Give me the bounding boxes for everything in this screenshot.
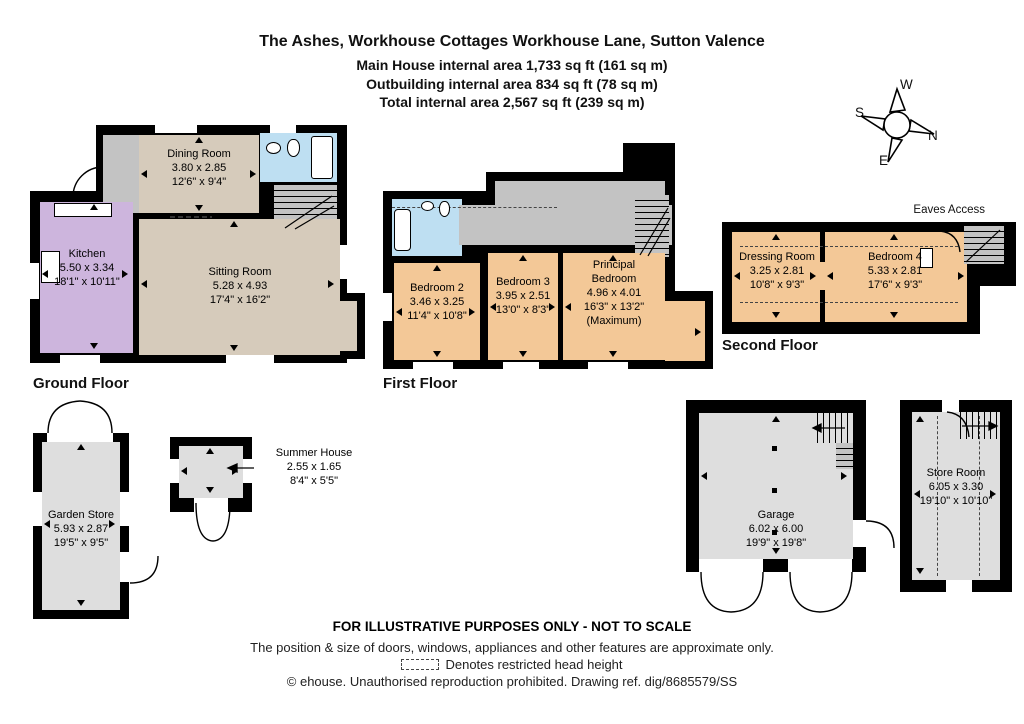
post-icon xyxy=(772,446,777,451)
room-dim-imperial: 17'6" x 9'3" xyxy=(825,278,965,292)
restricted-head-height-key-icon xyxy=(401,659,439,670)
room-dim-imperial: 19'10" x 10'10" xyxy=(904,494,1008,508)
door-opening xyxy=(120,552,129,582)
measure-arrow-icon xyxy=(77,444,85,450)
measure-arrow-icon xyxy=(232,467,238,475)
room-label-bedroom4: Bedroom 4 5.33 x 2.81 17'6" x 9'3" xyxy=(825,250,965,292)
post-icon xyxy=(772,488,777,493)
room-label-bedroom2: Bedroom 2 3.46 x 3.25 11'4" x 10'8" xyxy=(394,281,480,323)
compass-east-label: E xyxy=(879,153,888,168)
restricted-head-height-line xyxy=(740,302,958,303)
room-dim-imperial: 10'8" x 9'3" xyxy=(732,278,822,292)
window xyxy=(243,459,252,483)
room-name: Principal Bedroom xyxy=(579,258,649,286)
room-dim-imperial: 13'0" x 8'3" xyxy=(488,303,558,317)
door-opening xyxy=(47,433,113,442)
store-room-plan: Store Room 6.05 x 3.30 19'10" x 10'10" xyxy=(900,400,1014,595)
garage-stairs-turn xyxy=(836,443,853,469)
kitchen-sink-icon xyxy=(54,203,112,217)
sink-icon xyxy=(266,142,281,154)
floorplan-page: { "title": { "address": "The Ashes, Work… xyxy=(0,0,1024,724)
toilet-icon xyxy=(439,201,450,217)
measure-arrow-icon xyxy=(772,312,780,318)
room-dim-metric: 3.46 x 3.25 xyxy=(394,295,480,309)
property-address: The Ashes, Workhouse Cottages Workhouse … xyxy=(0,33,1024,51)
door-opening xyxy=(942,400,959,412)
measure-arrow-icon xyxy=(772,416,780,422)
room-label-dressing: Dressing Room 3.25 x 2.81 10'8" x 9'3" xyxy=(732,250,822,292)
door-opening xyxy=(788,559,852,572)
room-label-principal: Principal Bedroom 4.96 x 4.01 16'3" x 13… xyxy=(563,258,665,328)
room-label-sitting: Sitting Room 5.28 x 4.93 17'4" x 16'2" xyxy=(160,265,320,307)
restricted-head-height-key-text: Denotes restricted head height xyxy=(445,657,622,672)
bathtub-icon xyxy=(394,209,411,251)
window xyxy=(946,580,972,592)
first-stairs xyxy=(635,195,669,257)
measure-arrow-icon xyxy=(916,416,924,422)
measure-arrow-icon xyxy=(609,351,617,357)
room-dim-imperial: 11'4" x 10'8" xyxy=(394,309,480,323)
measure-arrow-icon xyxy=(519,351,527,357)
measure-arrow-icon xyxy=(890,234,898,240)
room-dim-metric: 2.55 x 1.65 xyxy=(258,460,370,474)
room-dim-metric: 6.05 x 3.30 xyxy=(904,480,1008,494)
room-name: Summer House xyxy=(258,446,370,460)
first-floor-caption: First Floor xyxy=(383,375,457,392)
toilet-icon xyxy=(287,139,300,157)
compass-south-label: S xyxy=(855,105,864,120)
room-dim-imperial: 18'1" x 10'11" xyxy=(40,275,134,289)
second-floor-plan: Eaves Access Dressing Room 3.25 x 2.81 1… xyxy=(720,200,1016,340)
door-opening xyxy=(194,498,228,512)
restricted-head-height-line xyxy=(392,207,557,208)
measure-arrow-icon xyxy=(890,312,898,318)
room-dim-imperial: 8'4" x 5'5" xyxy=(258,474,370,488)
room-dim-metric: 4.96 x 4.01 xyxy=(563,286,665,300)
compass-west-label: W xyxy=(900,77,913,92)
room-dim-imperial: 17'4" x 16'2" xyxy=(160,293,320,307)
door-opening xyxy=(699,559,763,572)
room-dim-metric: 3.95 x 2.51 xyxy=(488,289,558,303)
room-dim-metric: 3.25 x 2.81 xyxy=(732,264,822,278)
room-label-bedroom3: Bedroom 3 3.95 x 2.51 13'0" x 8'3" xyxy=(488,275,558,317)
window xyxy=(413,362,453,369)
garden-store-plan: Garden Store 5.93 x 2.87 19'5" x 9'5" xyxy=(33,400,139,622)
bathtub-icon xyxy=(311,136,333,179)
room-name: Bedroom 4 xyxy=(825,250,965,264)
measure-arrow-icon xyxy=(328,280,334,288)
window xyxy=(155,125,197,133)
room-label-kitchen: Kitchen 5.50 x 3.34 18'1" x 10'11" xyxy=(40,247,134,289)
measure-arrow-icon xyxy=(772,234,780,240)
measure-arrow-icon xyxy=(90,204,98,210)
room-note: (Maximum) xyxy=(563,314,665,328)
measure-arrow-icon xyxy=(77,600,85,606)
room-dim-metric: 5.93 x 2.87 xyxy=(38,522,124,536)
measure-arrow-icon xyxy=(230,345,238,351)
room-name: Dining Room xyxy=(139,147,259,161)
room-label-garden-store: Garden Store 5.93 x 2.87 19'5" x 9'5" xyxy=(38,508,124,550)
measure-arrow-icon xyxy=(230,221,238,227)
measure-arrow-icon xyxy=(433,265,441,271)
room-name: Dressing Room xyxy=(732,250,822,264)
main-house-area: Main House internal area 1,733 sq ft (16… xyxy=(0,57,1024,73)
room-label-dining: Dining Room 3.80 x 2.85 12'6" x 9'4" xyxy=(139,147,259,189)
summer-house-plan xyxy=(170,437,256,545)
room-dim-metric: 3.80 x 2.85 xyxy=(139,161,259,175)
room-name: Kitchen xyxy=(40,247,134,261)
footer-approximate-note: The position & size of doors, windows, a… xyxy=(0,640,1024,655)
measure-arrow-icon xyxy=(181,467,187,475)
measure-arrow-icon xyxy=(433,351,441,357)
window xyxy=(270,125,296,133)
measure-arrow-icon xyxy=(206,448,214,454)
window xyxy=(170,459,179,483)
measure-arrow-icon xyxy=(206,487,214,493)
room-label-summer-house: Summer House 2.55 x 1.65 8'4" x 5'5" xyxy=(258,446,370,488)
first-floor-plan: Bedroom 2 3.46 x 3.25 11'4" x 10'8" Bedr… xyxy=(383,143,713,369)
measure-arrow-icon xyxy=(916,568,924,574)
room-dim-imperial: 19'9" x 19'8" xyxy=(706,536,846,550)
measure-arrow-icon xyxy=(195,205,203,211)
measure-arrow-icon xyxy=(90,343,98,349)
garage-plan: Garage 6.02 x 6.00 19'9" x 19'8" xyxy=(686,400,872,612)
footer-copyright: © ehouse. Unauthorised reproduction proh… xyxy=(0,674,1024,689)
measure-arrow-icon xyxy=(519,255,527,261)
sink-icon xyxy=(421,201,434,211)
footer-disclaimer: FOR ILLUSTRATIVE PURPOSES ONLY - NOT TO … xyxy=(0,619,1024,634)
second-stairs xyxy=(964,226,1004,264)
room-dim-metric: 5.33 x 2.81 xyxy=(825,264,965,278)
room-dim-metric: 5.50 x 3.34 xyxy=(40,261,134,275)
window xyxy=(503,362,539,369)
measure-arrow-icon xyxy=(695,328,701,336)
store-stairs xyxy=(955,412,1000,439)
room-name: Bedroom 3 xyxy=(488,275,558,289)
measure-arrow-icon xyxy=(141,280,147,288)
compass-north-label: N xyxy=(928,128,938,143)
footer-restricted-note: Denotes restricted head height xyxy=(0,657,1024,672)
ground-floor-caption: Ground Floor xyxy=(33,375,129,392)
window xyxy=(383,293,392,321)
ground-floor-plan: Dining Room 3.80 x 2.85 12'6" x 9'4" Kit… xyxy=(30,125,366,368)
room-name: Sitting Room xyxy=(160,265,320,279)
room-name: Garage xyxy=(706,508,846,522)
total-area: Total internal area 2,567 sq ft (239 sq … xyxy=(0,94,1024,110)
window xyxy=(588,362,628,369)
room-dim-imperial: 19'5" x 9'5" xyxy=(38,536,124,550)
measure-arrow-icon xyxy=(701,472,707,480)
door-opening xyxy=(30,263,39,299)
room-dim-imperial: 12'6" x 9'4" xyxy=(139,175,259,189)
eaves-access-label: Eaves Access xyxy=(870,204,985,216)
window xyxy=(340,245,347,279)
door-opening xyxy=(853,520,866,547)
room-dim-metric: 6.02 x 6.00 xyxy=(706,522,846,536)
measure-arrow-icon xyxy=(841,472,847,480)
room-name: Store Room xyxy=(904,466,1008,480)
room-label-store-room: Store Room 6.05 x 3.30 19'10" x 10'10" xyxy=(904,466,1008,508)
window xyxy=(226,355,274,363)
outbuilding-area: Outbuilding internal area 834 sq ft (78 … xyxy=(0,76,1024,92)
second-floor-caption: Second Floor xyxy=(722,337,818,354)
restricted-head-height-line xyxy=(740,246,958,247)
garage-stairs xyxy=(812,413,853,443)
room-name: Garden Store xyxy=(38,508,124,522)
room-label-garage: Garage 6.02 x 6.00 19'9" x 19'8" xyxy=(706,508,846,550)
window xyxy=(60,355,100,363)
measure-arrow-icon xyxy=(195,137,203,143)
room-dim-imperial: 16'3" x 13'2" xyxy=(563,300,665,314)
sitting-room-alcove xyxy=(292,301,357,351)
room-name: Bedroom 2 xyxy=(394,281,480,295)
room-dim-metric: 5.28 x 4.93 xyxy=(160,279,320,293)
